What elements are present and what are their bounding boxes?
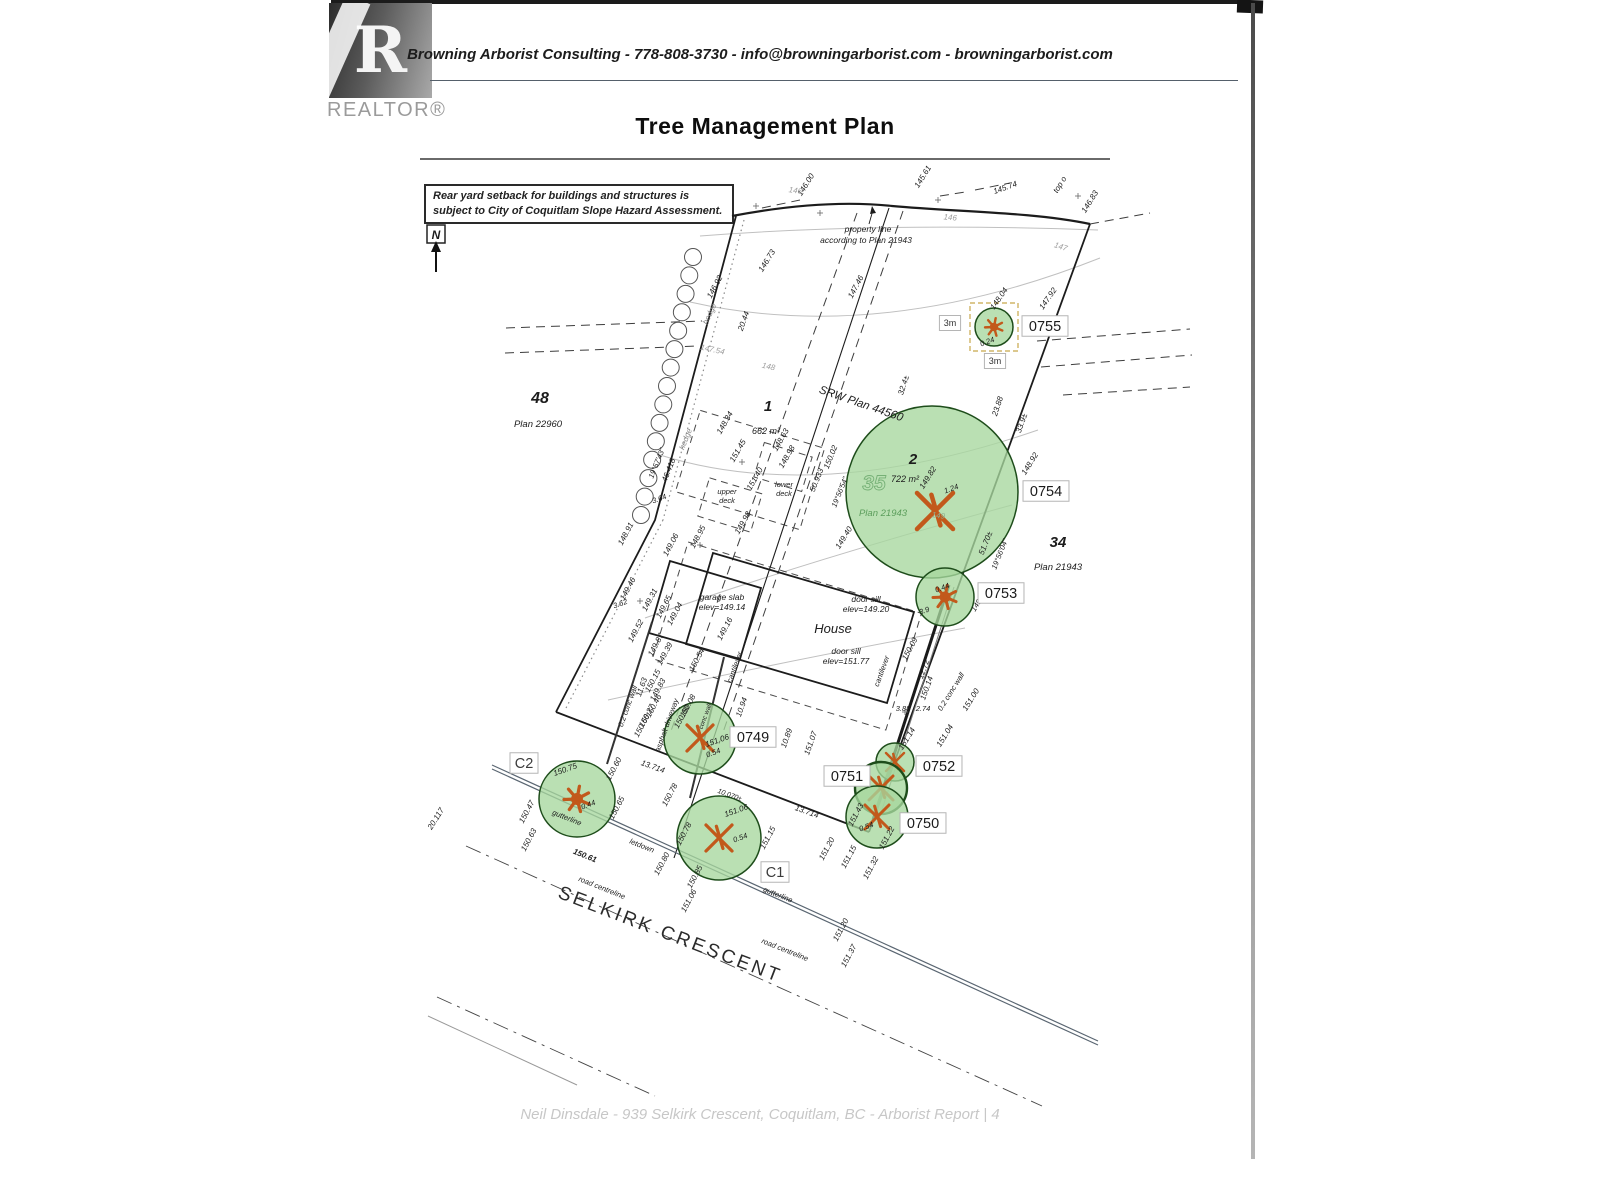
tree-tag-C1: C1 — [761, 862, 789, 883]
annotation-text: property line — [844, 224, 892, 234]
tree-tag-C2: C2 — [510, 753, 538, 774]
lot-number-1: 1 — [764, 398, 772, 415]
lot-area: 722 m² — [891, 474, 920, 484]
tag-text: 0755 — [1029, 319, 1061, 335]
annotation-text: 32.4± — [896, 374, 911, 396]
tag-text: C2 — [515, 756, 534, 772]
tree-tag-0749: 0749 — [730, 727, 776, 748]
tree-tag-0751: 0751 — [824, 766, 870, 787]
annotation-text: 151.32 — [861, 854, 881, 880]
annotation-text: 13.714 — [794, 803, 821, 820]
tree-tag-0752: 0752 — [916, 756, 962, 777]
annotation-text: lower — [775, 480, 793, 489]
annotation-text: SRW Plan 44560 — [817, 384, 905, 424]
annotation-text: 13.714 — [640, 758, 667, 775]
lot-plan: Plan 21943 — [1034, 562, 1083, 573]
annotation-text: 151.40 — [745, 465, 765, 491]
lot-plan: Plan 22960 — [514, 419, 563, 430]
annotation-text: 151.04 — [935, 722, 956, 748]
annotation-text: road centreline — [760, 936, 809, 963]
annotation-text: 148.34 — [715, 409, 735, 435]
tag-text: 0753 — [985, 586, 1017, 602]
tag-text: 3m — [989, 356, 1002, 366]
annotation-text: 20.44 — [736, 310, 752, 333]
lot-number-2: 2 — [908, 451, 918, 468]
report-footer: Neil Dinsdale - 939 Selkirk Crescent, Co… — [350, 1106, 1170, 1123]
annotation-text: 150.47 — [517, 798, 537, 824]
annotation-text: 150.66 — [632, 712, 652, 738]
annotation-text: 10.94 — [734, 696, 749, 718]
annotation-text: elev=149.20 — [843, 604, 890, 614]
annotation-text: 150.02 — [822, 444, 840, 471]
annotation-text: deck — [719, 496, 736, 505]
annotation-text: 148 — [761, 361, 776, 373]
annotation-text: 147.54 — [700, 343, 726, 357]
annotation-text: 151.07 — [802, 730, 819, 757]
annotation-text: 3.88 — [896, 704, 911, 713]
annotation-text: 148.95 — [688, 523, 708, 549]
tree-tag-0755: 0755 — [1022, 316, 1068, 337]
tag-text: 3m — [944, 318, 957, 328]
annotation-text: 150.78 — [660, 781, 680, 807]
annotation-text: elev=149.14 — [699, 602, 746, 612]
lot-number-48: 48 — [530, 390, 549, 407]
annotation-text: 149.46 — [618, 575, 638, 601]
protection-zone-tag: 3m — [939, 316, 960, 331]
annotation-text: 150.80 — [652, 850, 672, 876]
annotation-text: 50.933 — [808, 467, 826, 494]
annotation-text: 151.20 — [817, 835, 837, 861]
annotation-text: 147.92 — [1037, 286, 1059, 312]
lot-number-34: 34 — [1050, 534, 1067, 551]
property-boundaries — [556, 204, 1090, 858]
road-centreline — [437, 997, 655, 1096]
annotation-text: according to Plan 21943 — [820, 235, 912, 245]
tag-text: 0754 — [1030, 484, 1062, 500]
annotation-text: 150.60 — [604, 755, 624, 781]
tag-text: 0749 — [737, 730, 769, 746]
annotation-text: 148.91 — [616, 521, 635, 547]
annotation-text: garage slab — [700, 592, 745, 602]
tag-text: C1 — [766, 865, 785, 881]
annotation-text: 150.63 — [519, 826, 539, 852]
annotation-text: 2.74 — [915, 704, 931, 713]
annotation-text: 146 — [788, 185, 803, 196]
protection-zone-tag: 3m — [984, 354, 1005, 369]
tag-text: 0752 — [923, 759, 955, 775]
annotation-text: House — [814, 621, 852, 636]
annotation-text: 149.06 — [661, 531, 681, 557]
annotation-text: 151.06 — [679, 887, 699, 913]
annotation-text: 33.9± — [1014, 412, 1029, 434]
annotation-text: 23.88 — [990, 395, 1005, 418]
annotation-text: gutterline — [762, 885, 794, 905]
annotation-text: deck — [776, 489, 793, 498]
north-label: N — [432, 228, 441, 242]
tree-tag-0754: 0754 — [1023, 481, 1069, 502]
annotation-text: 149.40 — [834, 524, 855, 550]
site-plan-drawing: 48Plan 229601662 m²2722 m²35Plan 2194334… — [0, 0, 1600, 1200]
annotation-text: 150.54 — [687, 646, 707, 672]
annotation-text: top o — [1051, 174, 1068, 194]
annotation-text: 150.61 — [572, 847, 599, 865]
annotation-text: 145.61 — [913, 164, 934, 190]
annotation-text: 146.83 — [1080, 188, 1101, 214]
tag-text: 0750 — [907, 816, 939, 832]
annotation-text: 46.418 — [660, 457, 678, 484]
annotation-text: 151.15 — [839, 843, 859, 869]
annotation-text: 10.89 — [779, 727, 794, 749]
annotation-text: 149.16 — [715, 615, 735, 641]
annotation-text: cantilever — [872, 654, 892, 688]
trees-layer — [539, 303, 1018, 880]
annotation-text: 20.117 — [425, 806, 446, 832]
scanned-arborist-report-page: { "header": { "logo_letter": "R", "logo_… — [0, 0, 1600, 1200]
annotation-text: 146.92 — [705, 273, 725, 299]
annotation-text: elev=151.77 — [823, 656, 870, 666]
annotation-text: 148.92 — [1020, 450, 1041, 476]
tag-text: 0751 — [831, 769, 863, 785]
annotation-text: 146 — [943, 212, 958, 222]
north-arrow: N — [427, 225, 445, 272]
annotation-text: 147 — [1053, 240, 1069, 253]
lot-watermark: 35 — [862, 472, 886, 495]
annotation-text: 151.45 — [728, 437, 748, 463]
annotation-text: letdown — [628, 837, 655, 855]
annotation-text: 151.37 — [839, 942, 859, 968]
annotation-text: 151.00 — [961, 686, 982, 712]
tree-tag-0753: 0753 — [978, 583, 1024, 604]
annotation-text: 149 — [931, 510, 946, 521]
annotation-text: door sill — [831, 646, 861, 656]
annotation-text: 149.52 — [626, 617, 646, 643]
annotation-text: SELKIRK CRESCENT — [555, 882, 785, 987]
annotation-text: 146.73 — [757, 247, 778, 273]
lot-area: 662 m² — [752, 426, 781, 436]
annotation-text: 145.74 — [992, 179, 1019, 196]
boundary-line — [732, 204, 1090, 224]
annotation-text: door sill — [851, 594, 881, 604]
annotation-text: 148.04 — [988, 286, 1010, 312]
annotation-text: upper — [717, 487, 737, 496]
tree-tag-0750: 0750 — [900, 813, 946, 834]
lot-plan: Plan 21943 — [859, 508, 908, 519]
